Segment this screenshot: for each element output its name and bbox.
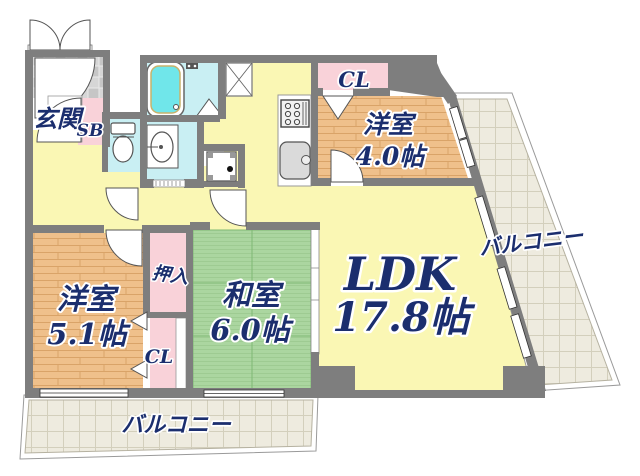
floor-plan-canvas: 玄関 SB CL 洋室 4.0帖 バルコニー LDK 17.8帖 和室 6.0帖… [0, 0, 640, 476]
balcony-bottom-label: バルコニー [121, 412, 232, 438]
ldk-size-label: 17.8帖 [332, 294, 475, 341]
western-large-size-label: 5.1帖 [47, 317, 131, 351]
entrance-double-door-right [60, 20, 90, 50]
toilet-icon [111, 123, 135, 134]
western-large-name-label: 洋室 [57, 282, 120, 316]
wall-top [140, 55, 437, 63]
closet-slide-panel [176, 318, 186, 390]
closet-bottom-label: CL [145, 346, 173, 368]
wall-left [25, 50, 33, 398]
japanese-room-size-label: 6.0帖 [210, 313, 294, 347]
storage-x-icon [226, 63, 252, 96]
closet-top-label: CL [338, 67, 369, 92]
shoe-box-label: SB [77, 121, 104, 141]
bathroom [147, 62, 223, 117]
floor-plan-drawing: 玄関 SB CL 洋室 4.0帖 バルコニー LDK 17.8帖 和室 6.0帖… [0, 0, 640, 476]
washroom-accordion-door [153, 180, 185, 187]
japanese-room-name-label: 和室 [222, 278, 285, 312]
western-small-size-label: 4.0帖 [356, 142, 428, 171]
fusuma-sliding-door [311, 228, 319, 354]
western-small-name-label: 洋室 [363, 110, 417, 139]
washroom [147, 122, 204, 183]
ldk-name-label: LDK [342, 247, 458, 301]
kitchen [278, 95, 311, 186]
washer-pan-icon [207, 152, 236, 181]
entrance-double-door-left [30, 20, 60, 50]
toilet-room [108, 119, 140, 172]
